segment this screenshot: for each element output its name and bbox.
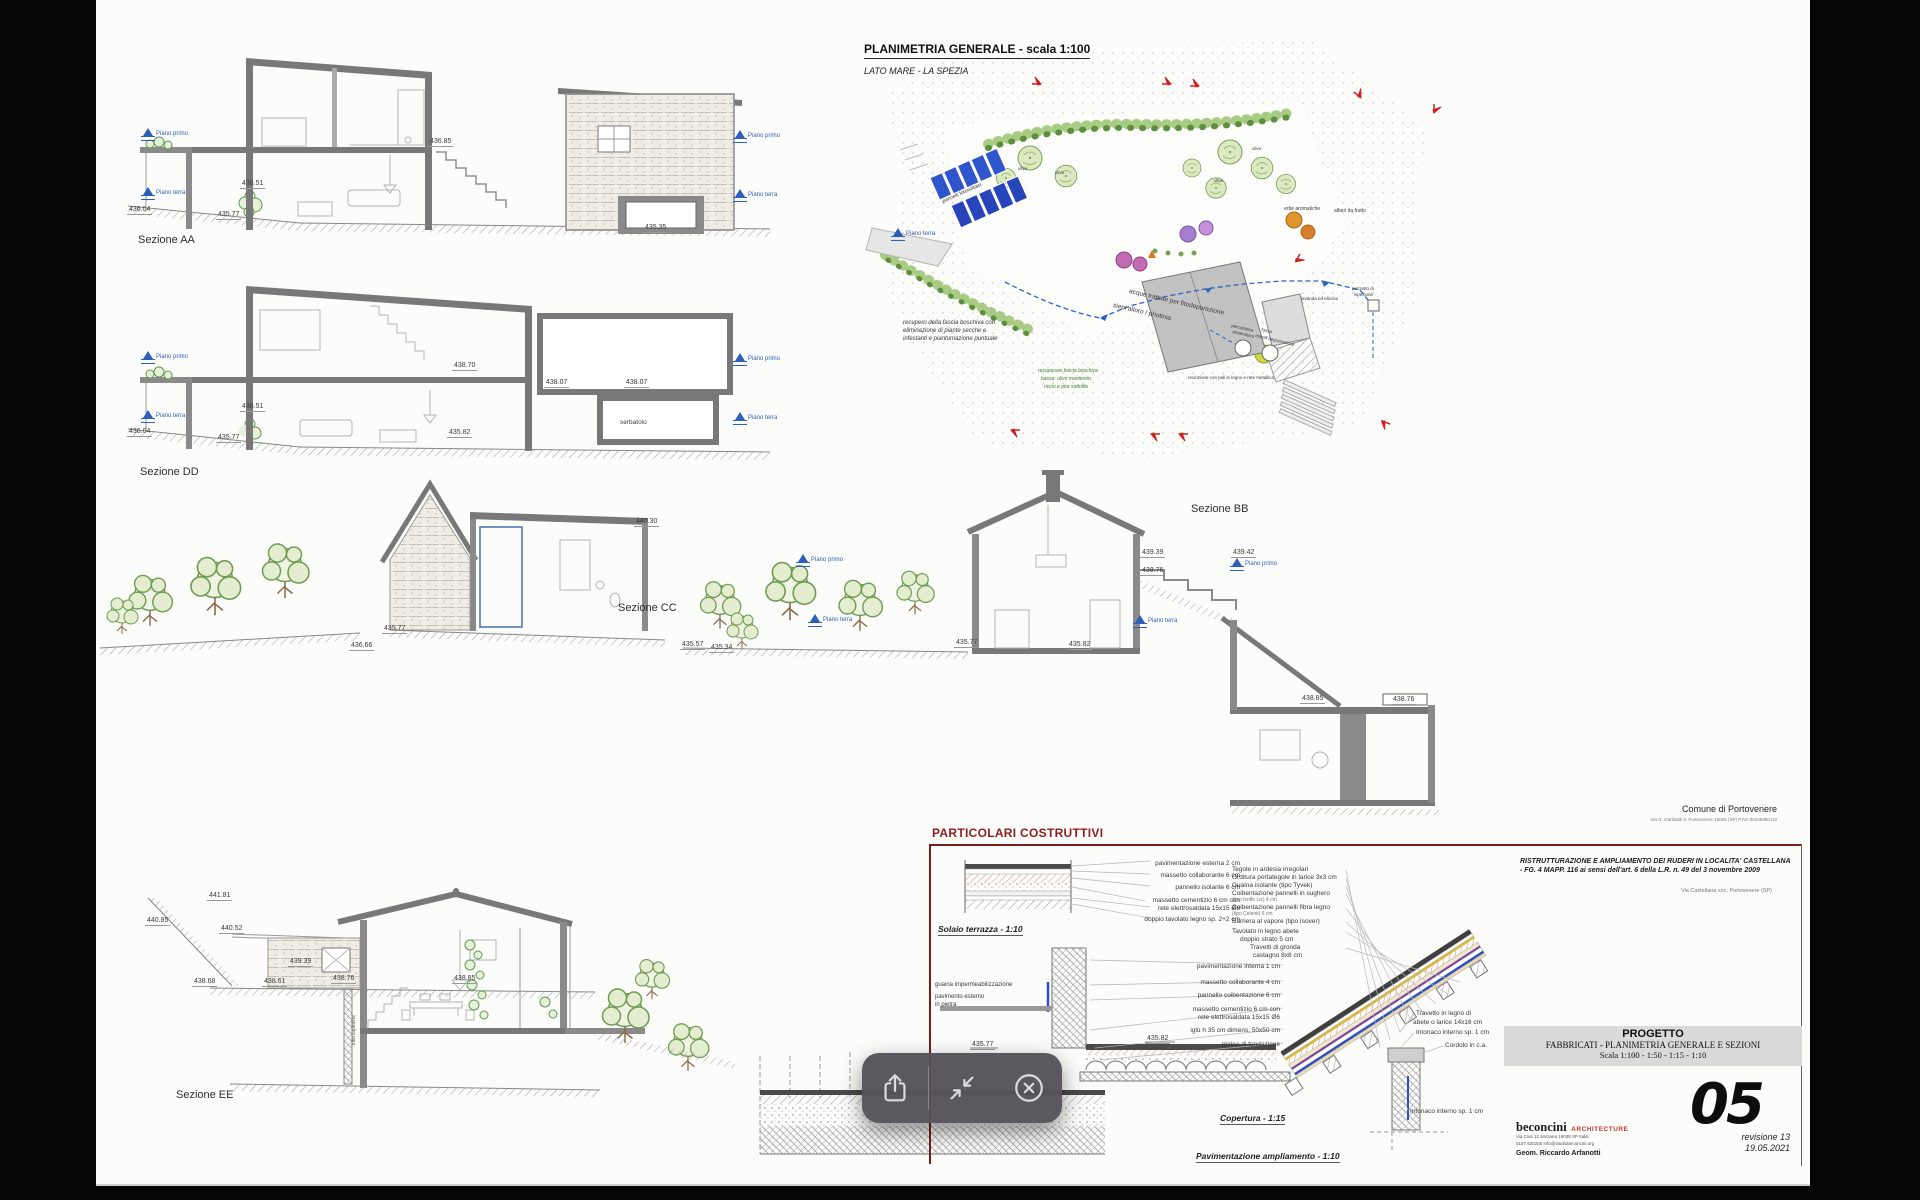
elevation-label: 435.57 <box>680 641 705 650</box>
detail-callout: Intonaco interno sp. 1 cm <box>1416 1029 1489 1036</box>
elevation-label: 438.76 <box>331 975 356 984</box>
plan-note: recupero della fascia boschiva con <box>903 320 995 327</box>
sheet-bottom-edge <box>96 1184 1810 1186</box>
elevation-label: 438.68 <box>192 978 217 987</box>
level-marker: Piano terra <box>810 614 852 626</box>
level-label: Piano terra <box>156 190 185 196</box>
studio-contact: 0187.620255 info@studiobeconcini.org <box>1516 1141 1594 1146</box>
studio-type: ARCHITECTURE <box>1571 1126 1628 1133</box>
elevation-label: 435.77 <box>382 625 407 634</box>
level-marker: Piano terra <box>143 410 185 422</box>
plan-label: pozzetto di <box>1352 286 1374 291</box>
detail-callout: castagno 8x8 cm <box>1253 952 1302 959</box>
level-marker: Piano primo <box>1232 558 1277 570</box>
solaio-terrazza-detail <box>965 860 1150 918</box>
level-label: Piano primo <box>156 131 188 137</box>
detail-caption: Solaio terrazza - 1:10 <box>938 924 1023 936</box>
elevation-label: 435.77 <box>216 211 241 220</box>
level-label: Piano terra <box>156 413 185 419</box>
level-label: Piano primo <box>1245 561 1277 567</box>
plan-label: erbe aromatiche <box>1284 207 1320 213</box>
details-title: PARTICOLARI COSTRUTTIVI <box>932 827 1103 841</box>
section-caption: Sezione BB <box>1191 503 1248 515</box>
share-button[interactable] <box>862 1053 928 1123</box>
detail-callout: massetto cementizio 6 cm con <box>1153 897 1240 904</box>
details-drawing <box>755 845 1505 1187</box>
plan-label: lavanda ed elicriso <box>1301 296 1338 301</box>
elevation-label: 440.30 <box>634 518 659 527</box>
elevation-label: 438.61 <box>262 978 287 987</box>
plan-label: alberi da frutto <box>1334 209 1366 215</box>
surveyor-name: Geom. Riccardo Arfanotti <box>1516 1150 1601 1158</box>
pergola-vines <box>465 940 557 1019</box>
elevation-label: 438.07 <box>624 379 649 388</box>
level-triangle-icon <box>143 351 153 359</box>
progetto-subtitle: FABBRICATI - PLANIMETRIA GENERALE E SEZI… <box>1504 1040 1802 1050</box>
details-frame-top <box>930 844 1802 846</box>
elevation-label: 438.76 <box>1391 696 1416 705</box>
sheet-number: 05 <box>1690 1072 1762 1137</box>
detail-callout: pannello isolante 6 cm <box>1175 884 1240 891</box>
level-label: Piano primo <box>811 557 843 563</box>
progetto-scale: Scala 1:100 - 1:50 - 1:15 - 1:10 <box>1504 1050 1802 1060</box>
plan-title: PLANIMETRIA GENERALE - scala 1:100 <box>864 42 1090 59</box>
plan-label: ulivo <box>1214 178 1223 183</box>
sezione-ee-drawing <box>96 878 736 1110</box>
level-label: Piano terra <box>748 192 777 198</box>
elevation-label: 439.39 <box>288 958 313 967</box>
sezione-aa-drawing <box>96 8 796 256</box>
detail-callout: abete o larice 14x16 cm <box>1413 1019 1482 1026</box>
elevation-label: 438.07 <box>544 379 569 388</box>
level-triangle-icon <box>143 187 153 195</box>
section-caption: Sezione DD <box>140 466 199 478</box>
level-label: Piano primo <box>748 356 780 362</box>
detail-callout: Barriera al vapore (tipo Isover) <box>1232 918 1320 925</box>
detail-callout: rete elettrosaldata 15x15 Ø6 <box>1198 1014 1280 1021</box>
elevation-label: 438.85 <box>1300 695 1325 704</box>
plan-label: ulivo <box>1018 166 1027 171</box>
elevation-label: 439.39 <box>1140 549 1165 558</box>
detail-callout: iglù h 35 cm dimens. 50x50 cm <box>1190 1027 1280 1034</box>
titleblock-border <box>1801 844 1802 1166</box>
level-label: Piano terra <box>823 617 852 623</box>
detail-caption: Copertura - 1:15 <box>1220 1113 1285 1125</box>
level-triangle-icon <box>810 614 820 622</box>
level-triangle-icon <box>798 554 808 562</box>
plan-label: recinzione con pali in legno e rete meta… <box>1188 375 1274 380</box>
level-triangle-icon <box>1135 615 1145 623</box>
detail-callout: Guaina isolante (tipo Tyvek) <box>1232 882 1312 889</box>
elevation-label: 435.82 <box>447 429 472 438</box>
level-marker: Piano primo <box>735 353 780 365</box>
detail-callout: massetto collaborante 6 cm <box>1161 872 1240 879</box>
plan-subtitle: LATO MARE - LA SPEZIA <box>864 66 968 76</box>
elevation-label: 438.76 <box>1140 567 1165 576</box>
elevation-label: 435.34 <box>709 644 734 653</box>
studio-name: beconcini <box>1516 1120 1567 1134</box>
elevation-label: 439.42 <box>1231 549 1256 558</box>
level-triangle-icon <box>143 410 153 418</box>
room-label: serbatoio <box>620 419 647 426</box>
detail-caption: Pavimentazione ampliamento - 1:10 <box>1196 1151 1340 1163</box>
detail-callout: massetto collaborante 4 cm <box>1201 979 1280 986</box>
detail-callout: pavimento esterno <box>935 994 984 1001</box>
elevation-label: 435.35 <box>643 224 668 233</box>
detail-callout: (tipo Isolfe Lis) 4 cm <box>1232 898 1277 904</box>
plan-label: ulivo <box>1055 170 1064 175</box>
level-label: Piano primo <box>156 354 188 360</box>
elevation-label: 440.52 <box>219 925 244 934</box>
detail-callout: Orditura portategole in larice 3x3 cm <box>1232 874 1337 881</box>
revision-label: revisione 13 <box>1741 1132 1790 1142</box>
close-icon <box>1012 1071 1046 1105</box>
elevation-label: 436.51 <box>240 180 265 189</box>
elevation-label: 435.82 <box>1067 641 1092 650</box>
detail-callout: doppio tavolato legno sp. 2+2 cm <box>1144 916 1240 923</box>
intercapedine-label: Intercapedine <box>352 1015 358 1045</box>
comune-label: Comune di Portovenere <box>1682 804 1777 814</box>
elevation-label: 435.77 <box>970 1041 995 1050</box>
close-button[interactable] <box>996 1053 1062 1123</box>
elevation-label: 438.70 <box>452 362 477 371</box>
level-marker: Piano primo <box>143 128 188 140</box>
plan-note: recuperare fascia boschiva <box>1038 369 1098 375</box>
section-caption: Sezione EE <box>176 1089 233 1101</box>
detail-callout: in pietra <box>935 1002 956 1009</box>
detail-callout: Intonaco interno sp. 1 cm <box>1410 1108 1483 1115</box>
collapse-button[interactable] <box>929 1053 995 1123</box>
studio-address: Via Civa 12 Sarzana 19038 SP Italia <box>1516 1134 1589 1139</box>
detail-callout: Tegole in ardesia irregolari <box>1232 866 1308 873</box>
section-caption: Sezione AA <box>138 234 195 246</box>
comune-subtext: Via G. Garibaldi 9, Portovenere 19025 (S… <box>1650 817 1777 822</box>
plan-note: eliminazione di piante secche e <box>903 328 986 335</box>
detail-callout: rete elettrosaldata 15x15 Ø6 <box>1158 905 1240 912</box>
viewer-toolbar <box>862 1053 1062 1123</box>
elevation-label: 436.04 <box>127 206 152 215</box>
project-description: - FG. 4 MAPP. 116 ai sensi dell'art. 6 d… <box>1520 867 1760 875</box>
level-label: Piano terra <box>748 415 777 421</box>
detail-callout: pavimentazione interna 1 cm <box>1197 963 1280 970</box>
project-address: Via Castellana snc, Portovenere (SP) <box>1681 888 1772 894</box>
level-marker: Piano primo <box>143 351 188 363</box>
plan-note: infestanti e piantumazione puntuale <box>903 336 997 343</box>
elevation-label: 435.77 <box>216 434 241 443</box>
elevation-label: 436.51 <box>240 403 265 412</box>
level-marker: Piano terra <box>1135 615 1177 627</box>
elevation-label: 440.85 <box>145 917 170 926</box>
detail-callout: massetto cementizio 6 cm con <box>1193 1006 1280 1013</box>
elevation-label: 436.04 <box>127 428 152 437</box>
section-caption: Sezione CC <box>618 602 677 614</box>
level-triangle-icon <box>735 353 745 361</box>
level-marker: Piano primo <box>798 554 843 566</box>
level-marker: Piano terra <box>143 187 185 199</box>
level-marker: Piano terra <box>893 228 935 240</box>
detail-callout: Tavolato in legno abete <box>1232 928 1299 935</box>
detail-callout: doppio strato 5 cm <box>1240 936 1293 943</box>
level-label: Piano terra <box>1148 618 1177 624</box>
level-triangle-icon <box>735 130 745 138</box>
share-icon <box>878 1071 912 1105</box>
revision-date: 19.05.2021 <box>1745 1143 1790 1153</box>
elevation-label: 436.66 <box>349 642 374 651</box>
detail-callout: Travetto in legno di <box>1416 1010 1471 1017</box>
level-triangle-icon <box>893 228 903 236</box>
detail-callout: Cordolo in c.a. <box>1445 1042 1487 1049</box>
level-triangle-icon <box>735 189 745 197</box>
elevation-label: 435.82 <box>1145 1035 1170 1044</box>
screen: 436.85 436.51 436.04 435.77 435.35 Piano… <box>0 0 1920 1200</box>
plan-label: ispezione <box>1354 292 1373 297</box>
level-marker: Piano terra <box>735 189 777 201</box>
progetto-title: PROGETTO <box>1504 1028 1802 1040</box>
elevation-label: 438.85 <box>452 975 477 984</box>
progetto-box: PROGETTO FABBRICATI - PLANIMETRIA GENERA… <box>1504 1026 1802 1066</box>
level-triangle-icon <box>735 412 745 420</box>
detail-callout: (tipo Celenit) 6 cm <box>1232 912 1273 918</box>
level-label: Piano primo <box>748 133 780 139</box>
level-triangle-icon <box>143 128 153 136</box>
plan-note: bassa: ulivo mantenim. <box>1041 377 1092 383</box>
elevation-label: 436.85 <box>428 138 453 147</box>
project-description: RISTRUTTURAZIONE E AMPLIAMENTO DEI RUDER… <box>1520 858 1791 866</box>
level-marker: Piano primo <box>735 130 780 142</box>
detail-callout: Travetti di gronda <box>1250 944 1300 951</box>
planimetria-drawing <box>858 28 1448 468</box>
collapse-icon <box>945 1071 979 1105</box>
sezione-dd-drawing <box>96 268 796 480</box>
plan-label: ulivo <box>1252 146 1261 151</box>
elevation-label: 435.77 <box>954 639 979 648</box>
level-marker: Piano terra <box>735 412 777 424</box>
level-label: Piano terra <box>906 231 935 237</box>
elevation-label: 441.81 <box>207 892 232 901</box>
level-triangle-icon <box>1232 558 1242 566</box>
plan-note: riccio e pira sottofile <box>1044 385 1088 391</box>
detail-callout: pavimentazione esterna 2 cm <box>1155 860 1240 867</box>
detail-callout: platea di fondazione <box>1222 1041 1280 1048</box>
detail-callout: guaina impermeabilizzazione <box>935 982 1012 989</box>
detail-callout: pannello coibentazione 6 cm <box>1198 992 1280 999</box>
